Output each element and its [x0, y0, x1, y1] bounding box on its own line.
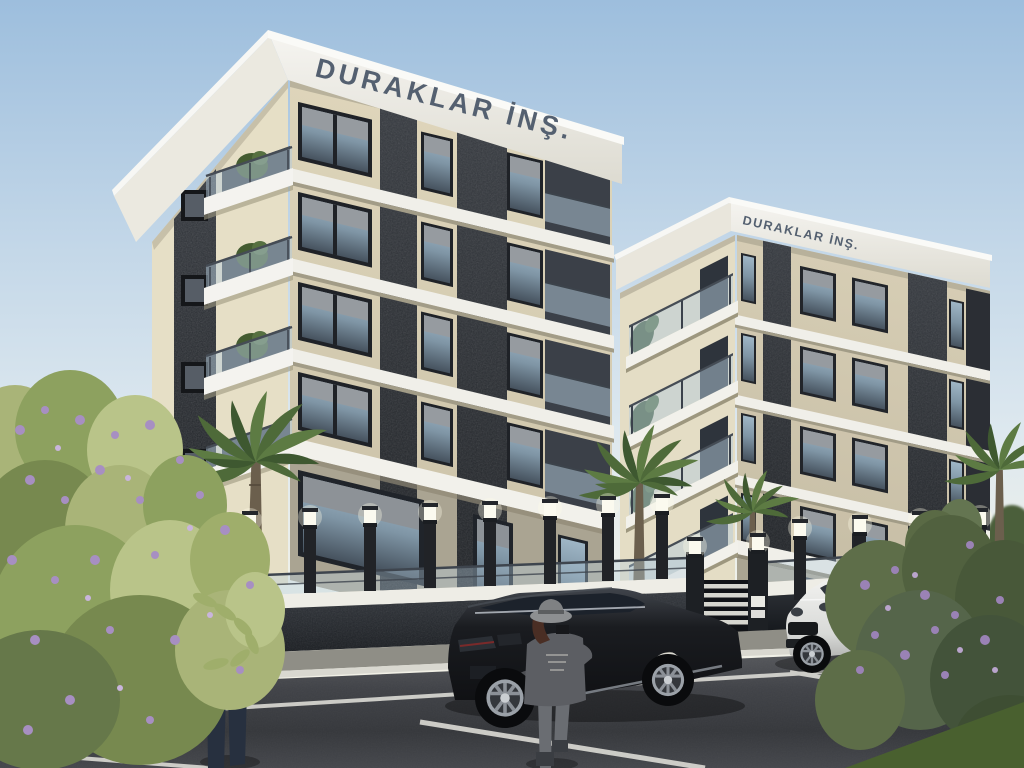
suv-headlight-left [791, 608, 803, 617]
woman-boot [536, 752, 554, 766]
gate-lamp-right [746, 530, 770, 554]
gate-mailbox [751, 596, 765, 607]
gate-pillar-right [748, 548, 768, 642]
gate-panel [751, 610, 765, 618]
black-car-front-wheel [642, 654, 694, 706]
gate-lamp-left [683, 534, 707, 558]
black-car-taillight-right [497, 633, 522, 646]
suv-grille [788, 622, 818, 635]
architectural-rendering: DURAKLAR İNŞ. [0, 0, 1024, 768]
scene: DURAKLAR İNŞ. [0, 0, 1024, 768]
suv-front-wheel [793, 635, 831, 673]
woman-camera [556, 625, 569, 634]
